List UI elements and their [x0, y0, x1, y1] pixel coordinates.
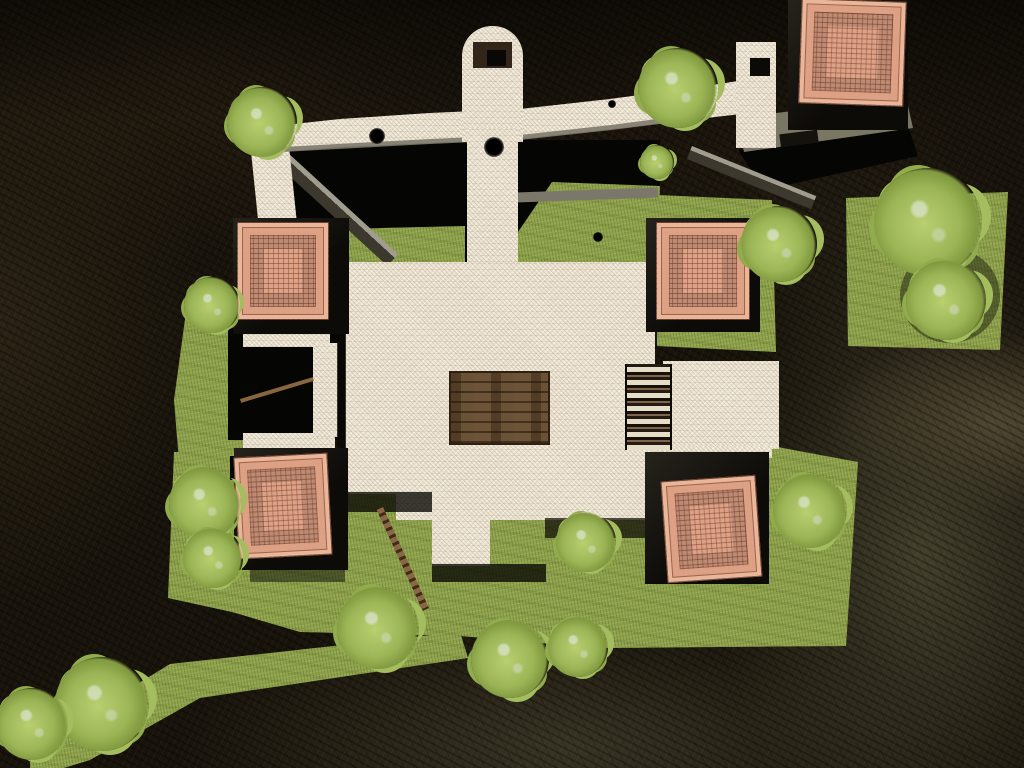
- central-wood-platform: [449, 371, 550, 445]
- tower-southwest-roof: [233, 453, 332, 560]
- rampart-corner-window: [750, 58, 770, 76]
- tree-rampart-west: [227, 87, 297, 157]
- tower-northeast-roof: [798, 0, 907, 107]
- east-platform: [663, 361, 779, 449]
- tower-east-roof: [656, 222, 750, 320]
- game-viewport[interactable]: [0, 0, 1024, 768]
- bell-tower-hatch: [487, 50, 506, 66]
- tower-southeast-roof: [661, 475, 763, 583]
- tree-left-ledge: [184, 277, 240, 333]
- tree-southeast-field: [773, 474, 847, 548]
- tree-east-wall-corner: [741, 206, 817, 282]
- tree-far-right-large: [874, 168, 982, 276]
- scorch-mark-grass: [593, 232, 603, 242]
- plaza-south-shadow-west: [345, 492, 432, 512]
- plaza-tongue-shadow: [432, 564, 546, 582]
- scorch-mark-bridge-strip: [484, 137, 504, 157]
- tree-far-right-lower: [906, 260, 986, 340]
- tree-rampart-east: [638, 48, 718, 128]
- tree-left-mid-lower: [183, 528, 243, 588]
- slatted-bridge: [625, 364, 672, 450]
- tree-bottom-center: [471, 620, 549, 698]
- tree-bottom-center-west: [337, 587, 419, 669]
- tree-south-of-plaza: [556, 512, 616, 572]
- scorch-mark-rampart-east: [608, 100, 616, 108]
- tree-bottom-left-large: [55, 657, 149, 751]
- tree-small-below-rampart: [640, 145, 674, 179]
- scorch-mark-rampart: [369, 128, 385, 144]
- tower-west-roof: [237, 222, 329, 320]
- porch-pillar: [313, 343, 338, 437]
- tree-bottom-center-east: [548, 617, 608, 677]
